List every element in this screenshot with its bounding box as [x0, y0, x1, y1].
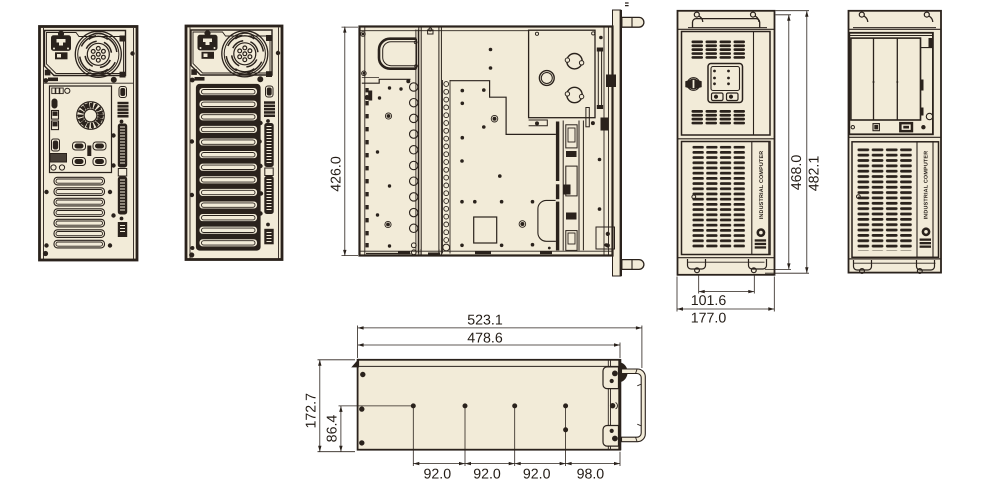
svg-text:92.0: 92.0	[523, 467, 551, 483]
svg-text:523.1: 523.1	[467, 312, 503, 328]
svg-text:426.0: 426.0	[329, 156, 345, 192]
svg-text:177.0: 177.0	[691, 311, 727, 327]
svg-text:478.6: 478.6	[467, 331, 503, 347]
svg-text:172.7: 172.7	[303, 393, 319, 429]
svg-text:98.0: 98.0	[577, 467, 605, 483]
svg-text:92.0: 92.0	[473, 467, 501, 483]
svg-text:92.0: 92.0	[423, 467, 451, 483]
svg-text:86.4: 86.4	[325, 415, 341, 443]
svg-text:468.0: 468.0	[789, 155, 805, 191]
svg-text:101.6: 101.6	[691, 293, 727, 309]
svg-text:INDUSTRIAL COMPUTER: INDUSTRIAL COMPUTER	[923, 151, 929, 220]
svg-text:INDUSTRIAL COMPUTER: INDUSTRIAL COMPUTER	[759, 151, 765, 220]
svg-text:482.1: 482.1	[806, 156, 822, 192]
